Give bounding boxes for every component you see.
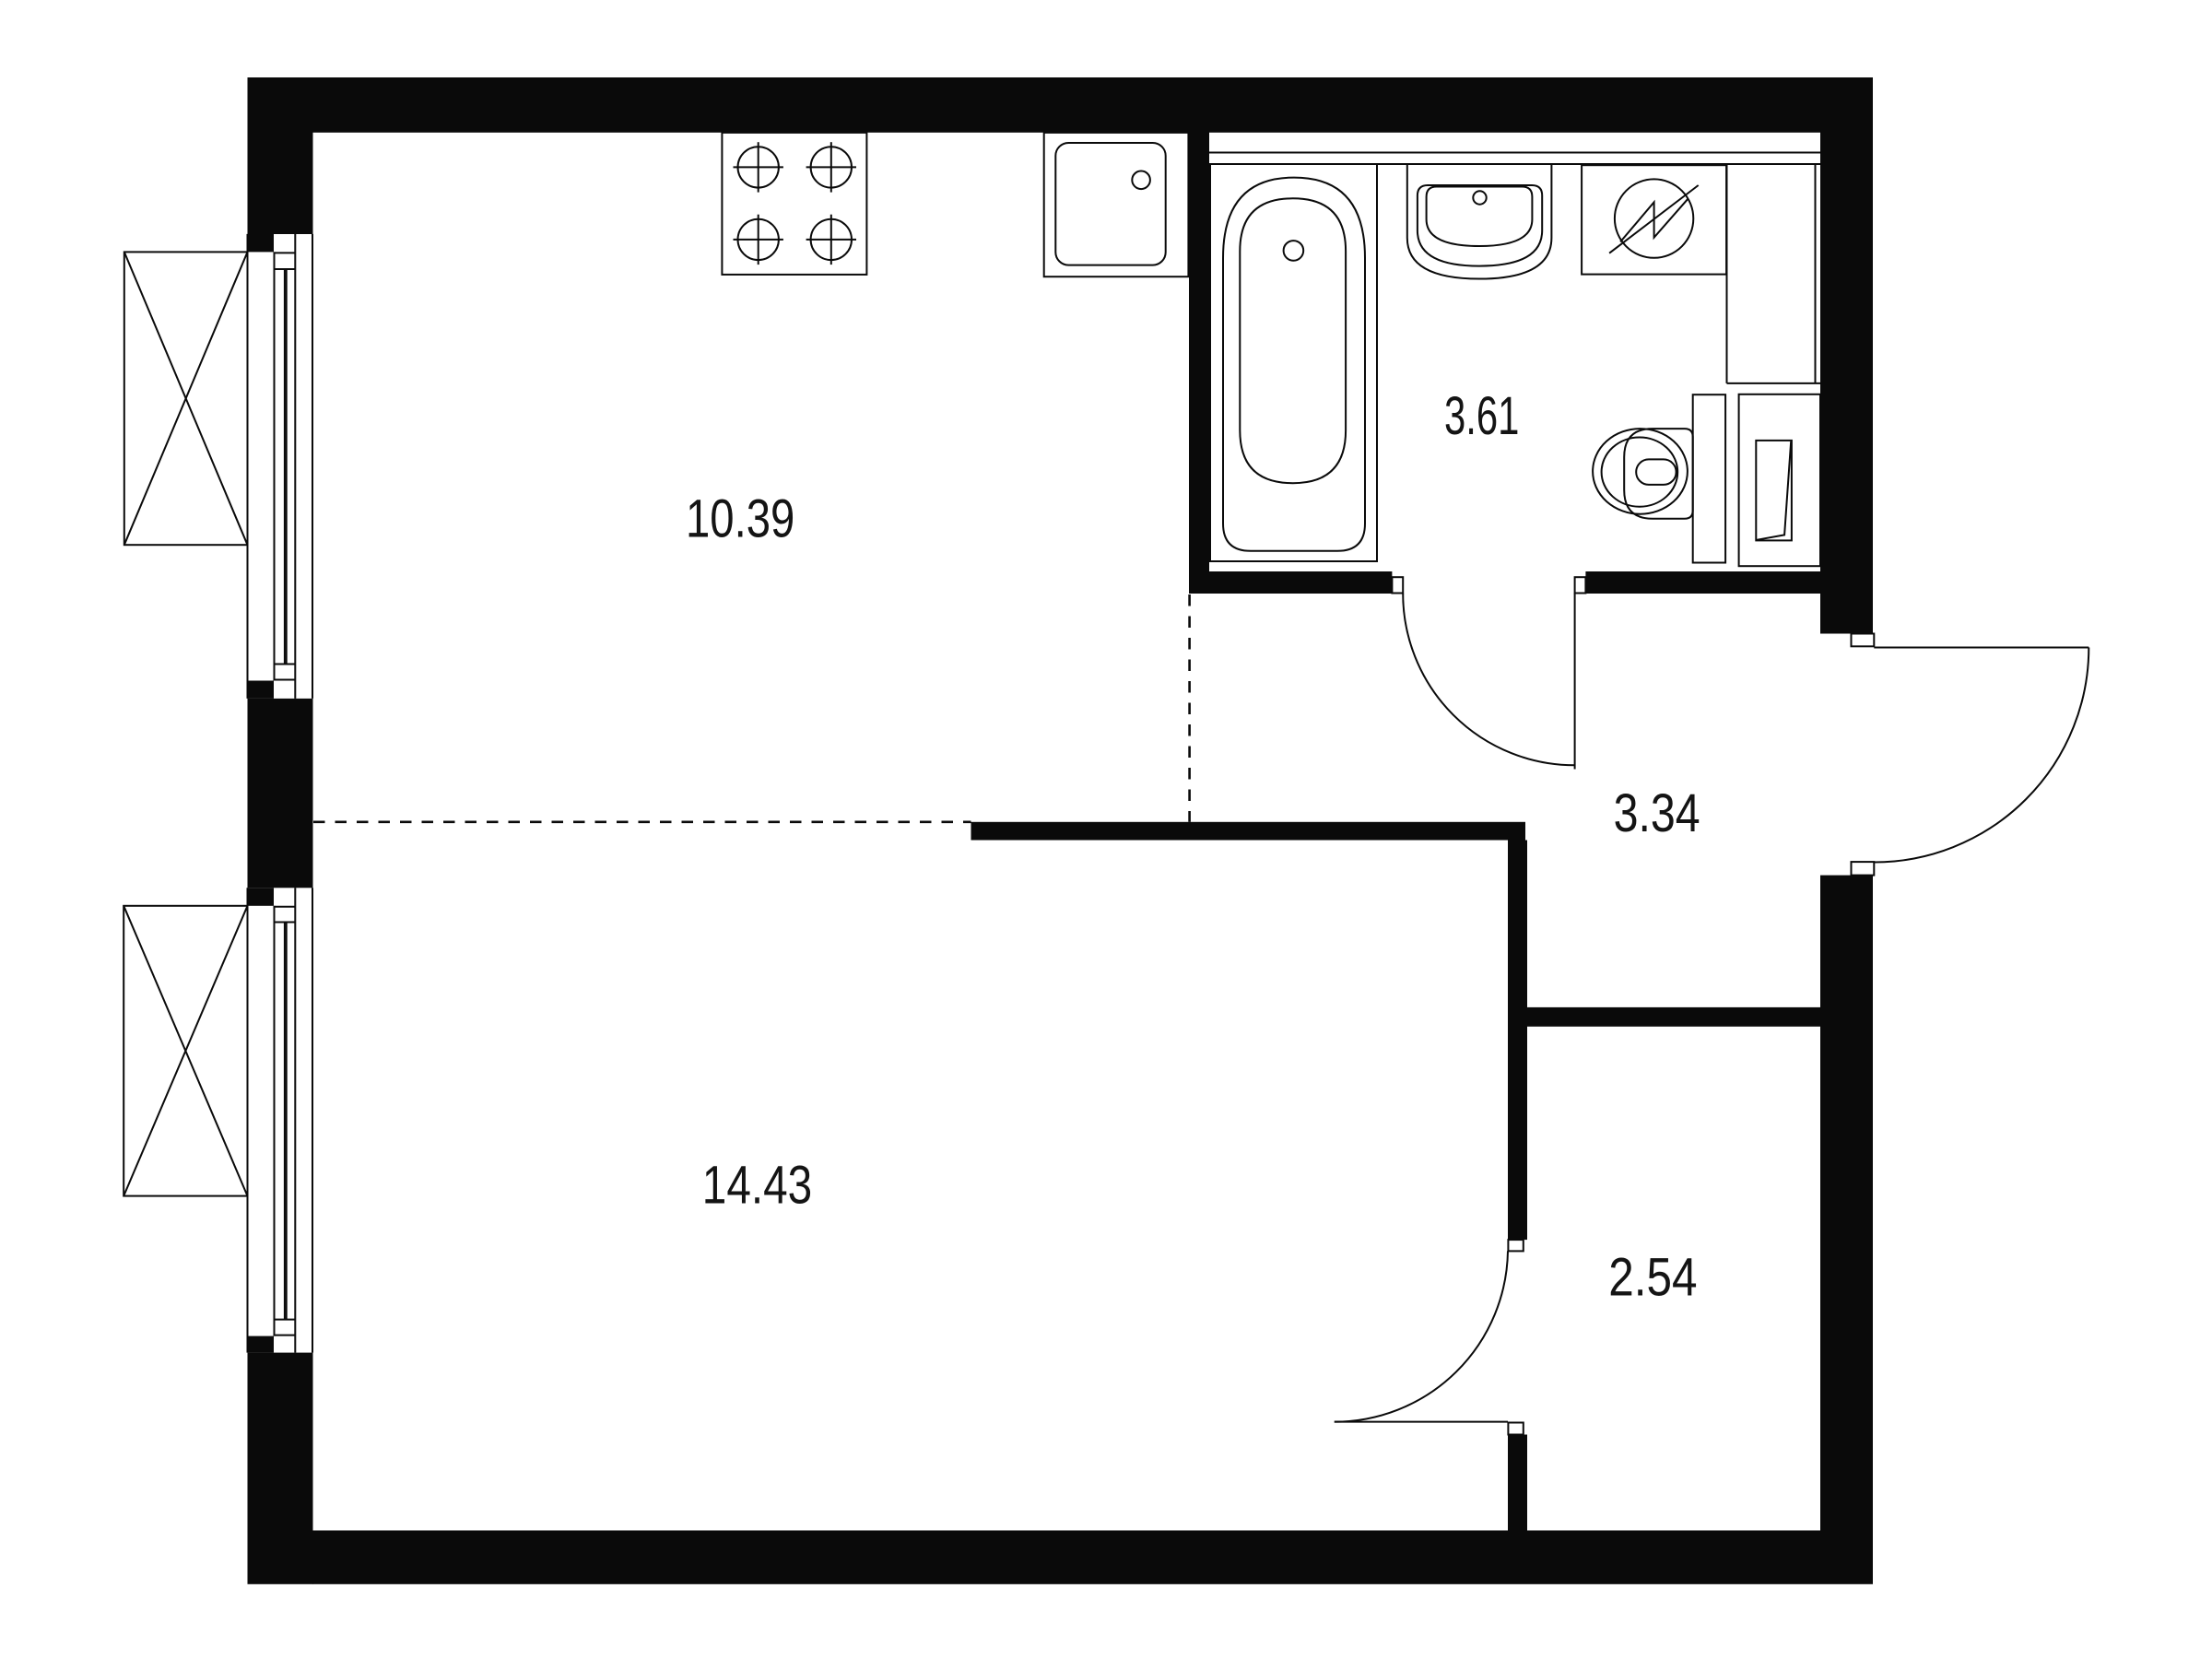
svg-text:14.43: 14.43 xyxy=(702,1156,812,1216)
svg-text:3.61: 3.61 xyxy=(1444,386,1519,446)
svg-text:2.54: 2.54 xyxy=(1608,1248,1697,1308)
svg-text:3.34: 3.34 xyxy=(1614,783,1700,843)
svg-text:10.39: 10.39 xyxy=(686,489,794,549)
